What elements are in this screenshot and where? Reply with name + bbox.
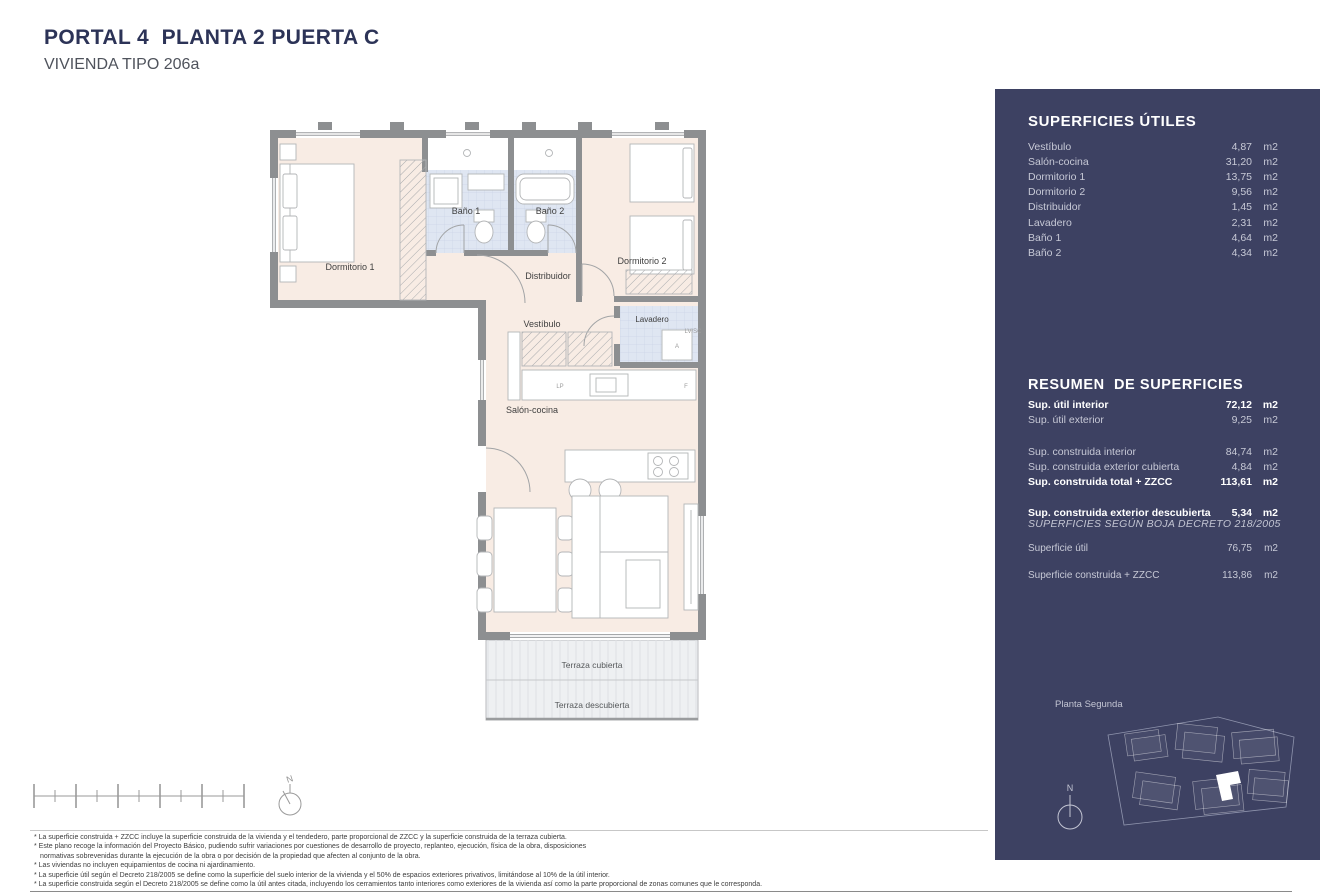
footnote-line: * Este plano recoge la información del P… — [34, 842, 1044, 851]
table-row: Sup. construida exterior cubierta4,84m2 — [1028, 459, 1278, 474]
row-label: Sup. construida interior — [1028, 446, 1226, 458]
room-label-lavadero: Lavadero — [635, 315, 669, 324]
row-label: Sup. construida exterior cubierta — [1028, 461, 1232, 473]
row-value: 4,87 — [1232, 141, 1252, 153]
footnote-line: * La superficie útil según el Decreto 21… — [34, 871, 1044, 880]
table-row: Vestíbulo4,87m2 — [1028, 139, 1278, 154]
row-value: 31,20 — [1226, 156, 1252, 168]
row-value: 4,34 — [1232, 247, 1252, 259]
north-label: N — [1067, 783, 1074, 793]
site-plan — [1098, 713, 1310, 831]
north-compass-panel: N — [1050, 779, 1090, 839]
summary-panel: SUPERFICIES ÚTILES Vestíbulo4,87m2 Salón… — [995, 89, 1320, 860]
footnote-line: * La superficie construida + ZZCC incluy… — [34, 833, 1044, 842]
row-value: 4,84 — [1232, 461, 1252, 473]
room-label-distribuidor: Distribuidor — [525, 271, 571, 281]
row-value: 1,45 — [1232, 201, 1252, 213]
row-value: 2,31 — [1232, 217, 1252, 229]
bottom-border-line — [30, 891, 1292, 892]
row-value: 9,25 — [1232, 414, 1252, 426]
footnotes: * La superficie construida + ZZCC incluy… — [34, 833, 1044, 889]
row-label: Dormitorio 1 — [1028, 171, 1226, 183]
room-label-bano2: Baño 2 — [536, 206, 565, 216]
row-unit: m2 — [1252, 156, 1278, 168]
table-row: Lavadero2,31m2 — [1028, 215, 1278, 230]
row-unit: m2 — [1252, 171, 1278, 183]
row-label: Sup. construida exterior descubierta — [1028, 507, 1232, 519]
room-label-dormitorio2: Dormitorio 2 — [617, 256, 666, 266]
row-value: 113,61 — [1220, 476, 1252, 488]
page-subtitle: VIVIENDA TIPO 206a — [44, 56, 199, 74]
table-row: Sup. útil interior72,12m2 — [1028, 397, 1278, 412]
row-label: Sup. útil exterior — [1028, 414, 1232, 426]
table-row: Sup. construida interior84,74m2 — [1028, 444, 1278, 459]
row-unit: m2 — [1252, 461, 1278, 473]
label-appliance-a: A — [675, 344, 679, 350]
row-label: Distribuidor — [1028, 201, 1232, 213]
wardrobe-dormitorio2 — [626, 270, 692, 294]
row-unit: m2 — [1252, 141, 1278, 153]
page-title: PORTAL 4 PLANTA 2 PUERTA C — [44, 26, 380, 50]
row-unit: m2 — [1252, 570, 1278, 581]
siteplan-label: Planta Segunda — [1055, 699, 1123, 710]
table-row: Sup. construida total + ZZCC113,61m2 — [1028, 474, 1278, 489]
north-label: N — [285, 773, 294, 785]
tall-cabinet — [508, 332, 520, 400]
table-row: Baño 14,64m2 — [1028, 230, 1278, 245]
room-label-vestibulo: Vestíbulo — [523, 319, 560, 329]
footnote-line: * Las viviendas no incluyen equipamiento… — [34, 861, 1044, 870]
row-label: Sup. útil interior — [1028, 399, 1226, 411]
tv-unit — [684, 504, 698, 610]
row-label: Superficie construida + ZZCC — [1028, 570, 1222, 581]
row-value: 4,64 — [1232, 232, 1252, 244]
table-row: Dormitorio 29,56m2 — [1028, 185, 1278, 200]
row-value: 76,75 — [1227, 543, 1252, 554]
label-f: F — [684, 384, 688, 390]
row-unit: m2 — [1252, 217, 1278, 229]
row-value: 113,86 — [1222, 570, 1252, 581]
label-terraza-cubierta: Terraza cubierta — [562, 660, 623, 670]
row-label: Lavadero — [1028, 217, 1232, 229]
row-unit: m2 — [1252, 446, 1278, 458]
table-row: Superficie construida + ZZCC113,86m2 — [1028, 568, 1278, 582]
hall-closet — [568, 332, 612, 366]
row-value: 5,34 — [1232, 507, 1252, 519]
floor-plan: Dormitorio 1 Baño 1 Baño 2 Dormitorio 2 … — [260, 120, 720, 728]
boja-table: Superficie útil76,75m2 Superficie constr… — [1028, 541, 1278, 582]
row-label: Salón-cocina — [1028, 156, 1226, 168]
table-row: Distribuidor1,45m2 — [1028, 200, 1278, 215]
room-label-dormitorio1: Dormitorio 1 — [325, 262, 374, 272]
table-row: Dormitorio 113,75m2 — [1028, 169, 1278, 184]
row-label: Baño 1 — [1028, 232, 1232, 244]
row-unit: m2 — [1252, 186, 1278, 198]
divider-line — [30, 830, 988, 831]
row-value: 84,74 — [1226, 446, 1252, 458]
row-unit: m2 — [1252, 543, 1278, 554]
dining-set — [477, 508, 573, 612]
row-unit: m2 — [1252, 247, 1278, 259]
superficies-utiles-table: Vestíbulo4,87m2 Salón-cocina31,20m2 Dorm… — [1028, 139, 1278, 261]
table-row: Superficie útil76,75m2 — [1028, 541, 1278, 555]
table-row: Sup. útil exterior9,25m2 — [1028, 412, 1278, 427]
row-unit: m2 — [1252, 232, 1278, 244]
row-unit: m2 — [1252, 507, 1278, 519]
resumen-table: Sup. útil interior72,12m2 Sup. útil exte… — [1028, 397, 1278, 520]
row-label: Dormitorio 2 — [1028, 186, 1232, 198]
sofa — [572, 496, 668, 618]
table-row: Baño 24,34m2 — [1028, 245, 1278, 260]
wardrobe-dormitorio1 — [400, 160, 426, 300]
kitchen-counter — [522, 370, 696, 400]
plan-sheet: PORTAL 4 PLANTA 2 PUERTA C VIVIENDA TIPO… — [0, 0, 1320, 895]
row-label: Baño 2 — [1028, 247, 1232, 259]
row-unit: m2 — [1252, 399, 1278, 411]
scale-bar — [30, 768, 270, 818]
room-label-bano1: Baño 1 — [452, 206, 481, 216]
row-label: Vestíbulo — [1028, 141, 1232, 153]
row-value: 9,56 — [1232, 186, 1252, 198]
row-unit: m2 — [1252, 476, 1278, 488]
label-lp: LP — [556, 384, 563, 390]
row-label: Superficie útil — [1028, 543, 1227, 554]
row-value: 13,75 — [1226, 171, 1252, 183]
table-row: Salón-cocina31,20m2 — [1028, 154, 1278, 169]
hall-closet — [522, 332, 566, 366]
row-unit: m2 — [1252, 414, 1278, 426]
superficies-utiles-title: SUPERFICIES ÚTILES — [1028, 113, 1196, 130]
label-terraza-descubierta: Terraza descubierta — [555, 700, 630, 710]
label-lvsc: LV/SC — [685, 329, 703, 335]
row-value: 72,12 — [1226, 399, 1252, 411]
room-label-salon: Salón-cocina — [506, 405, 558, 415]
north-compass: N — [272, 770, 312, 826]
row-unit: m2 — [1252, 201, 1278, 213]
boja-title: SUPERFICIES SEGÚN BOJA DECRETO 218/2005 — [1028, 518, 1281, 530]
footnote-line: * La superficie construida según el Decr… — [34, 880, 1044, 889]
footnote-line: normativas sobrevenidas durante la ejecu… — [34, 852, 1044, 861]
row-label: Sup. construida total + ZZCC — [1028, 476, 1220, 488]
resumen-title: RESUMEN DE SUPERFICIES — [1028, 377, 1243, 393]
